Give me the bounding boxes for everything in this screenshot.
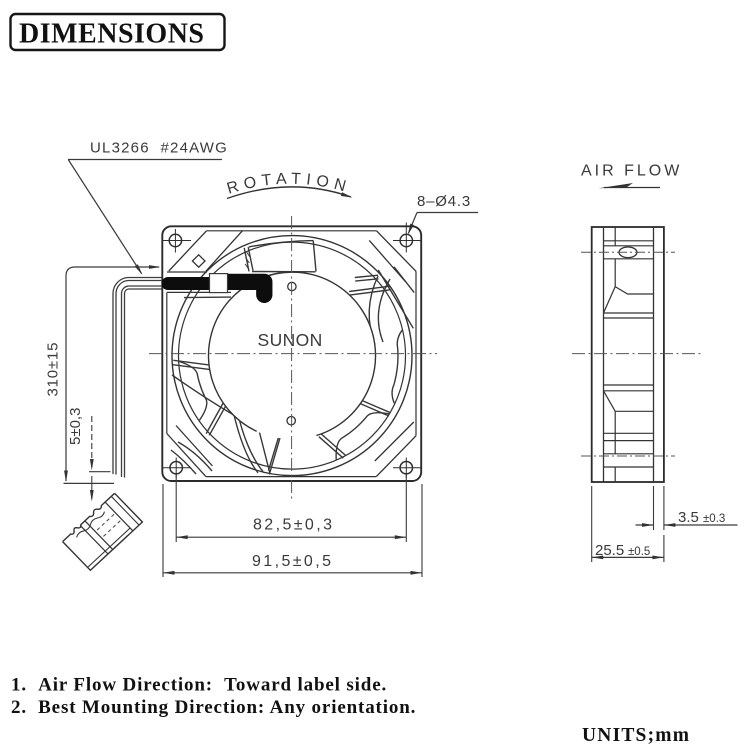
svg-text:8–Ø4.3: 8–Ø4.3: [417, 193, 471, 210]
svg-text:1. Air Flow Direction: Towar: 1. Air Flow Direction: Toward label side…: [11, 675, 387, 696]
svg-text:82,5±0,3: 82,5±0,3: [253, 517, 334, 534]
svg-text:310±15: 310±15: [45, 342, 62, 397]
svg-text:UL3266 #24AWG: UL3266 #24AWG: [90, 140, 228, 157]
svg-text:5±0,3: 5±0,3: [67, 408, 84, 445]
svg-text:±0.3: ±0.3: [703, 513, 725, 525]
svg-text:91,5±0,5: 91,5±0,5: [252, 553, 333, 570]
svg-text:±0.5: ±0.5: [628, 546, 650, 558]
svg-text:DIMENSIONS: DIMENSIONS: [19, 19, 204, 50]
svg-text:2. Best Mounting Direction: A: 2. Best Mounting Direction: Any orientat…: [11, 697, 416, 718]
svg-text:AIR FLOW: AIR FLOW: [581, 163, 682, 180]
svg-text:UNITS;mm: UNITS;mm: [582, 725, 690, 746]
svg-text:25.5: 25.5: [595, 542, 624, 559]
svg-text:SUNON: SUNON: [258, 330, 323, 350]
svg-text:3.5: 3.5: [678, 509, 699, 526]
